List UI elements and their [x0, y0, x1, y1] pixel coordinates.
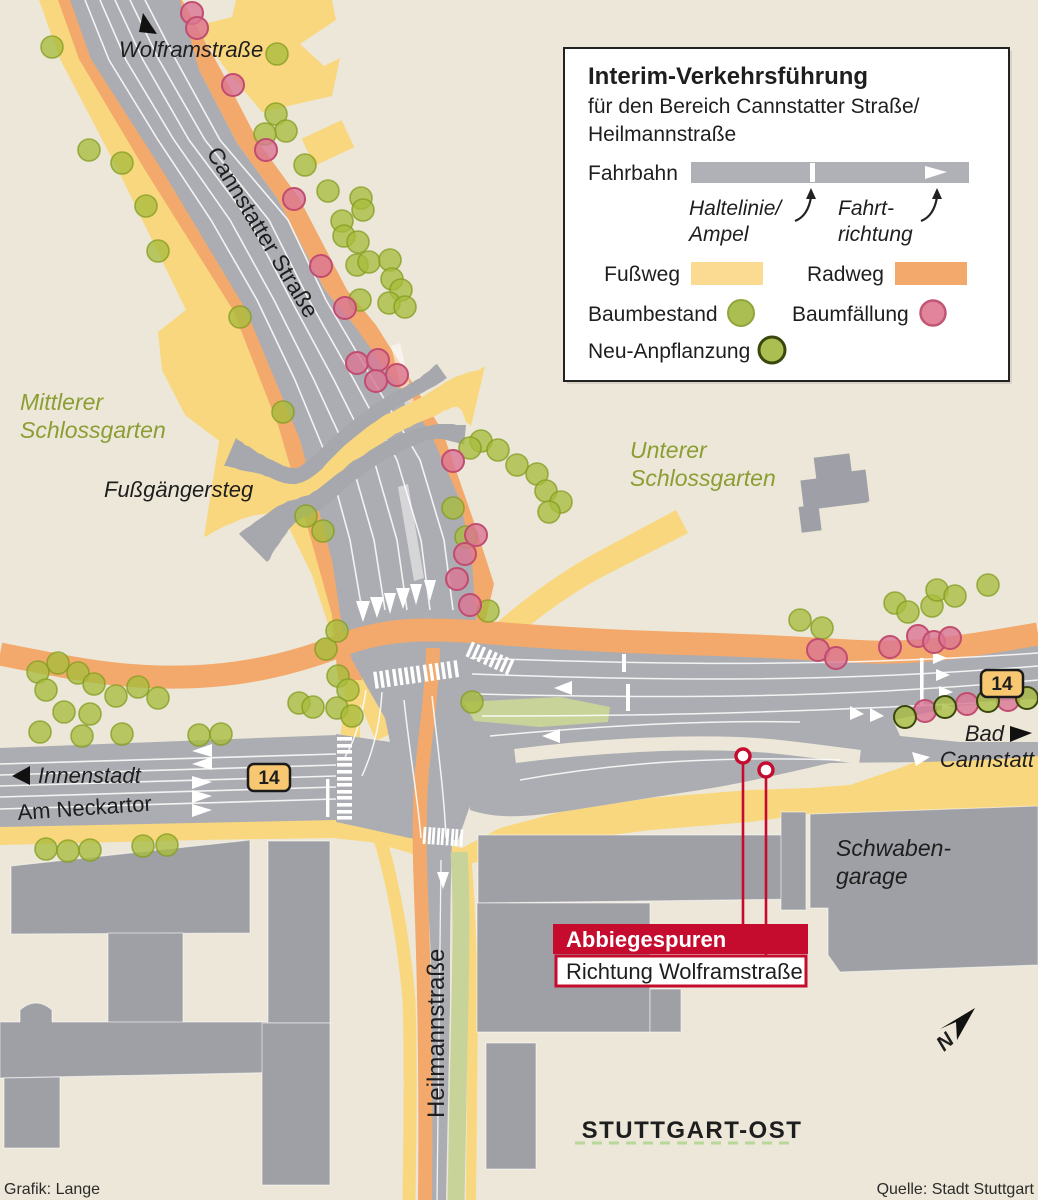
svg-text:Bad: Bad	[965, 721, 1005, 746]
svg-text:Fahrbahn: Fahrbahn	[588, 162, 678, 185]
svg-text:Baumfällung: Baumfällung	[792, 303, 909, 326]
svg-text:Schlossgarten: Schlossgarten	[20, 417, 166, 443]
svg-text:STUTTGART-OST: STUTTGART-OST	[582, 1117, 803, 1144]
svg-text:Baumbestand: Baumbestand	[588, 303, 718, 326]
svg-text:Grafik: Lange: Grafik: Lange	[4, 1181, 100, 1198]
svg-text:Schwaben-: Schwaben-	[836, 835, 951, 861]
svg-text:Haltelinie/: Haltelinie/	[689, 197, 783, 220]
svg-text:Innenstadt: Innenstadt	[38, 763, 142, 788]
svg-text:Unterer: Unterer	[630, 437, 708, 463]
svg-text:Radweg: Radweg	[807, 263, 884, 286]
svg-text:Schlossgarten: Schlossgarten	[630, 465, 776, 491]
svg-text:für den Bereich Cannstatter St: für den Bereich Cannstatter Straße/	[588, 95, 920, 118]
svg-text:14: 14	[258, 768, 280, 789]
svg-text:Neu-Anpflanzung: Neu-Anpflanzung	[588, 340, 750, 363]
svg-text:Abbiegespuren: Abbiegespuren	[566, 927, 726, 952]
svg-text:Quelle: Stadt Stuttgart: Quelle: Stadt Stuttgart	[877, 1181, 1035, 1198]
svg-text:Wolframstraße: Wolframstraße	[119, 37, 263, 62]
svg-text:Heilmannstraße: Heilmannstraße	[423, 949, 450, 1118]
svg-text:Heilmannstraße: Heilmannstraße	[588, 123, 736, 146]
svg-text:garage: garage	[836, 863, 908, 889]
svg-text:richtung: richtung	[838, 223, 913, 246]
svg-text:Cannstatt: Cannstatt	[940, 747, 1035, 772]
svg-text:Fußweg: Fußweg	[604, 263, 680, 286]
svg-text:Ampel: Ampel	[687, 223, 750, 246]
svg-text:Fahrt-: Fahrt-	[838, 197, 894, 220]
svg-text:Interim-Verkehrsführung: Interim-Verkehrsführung	[588, 63, 868, 90]
svg-text:Mittlerer: Mittlerer	[20, 389, 104, 415]
svg-text:Fußgängersteg: Fußgängersteg	[104, 477, 254, 502]
svg-text:14: 14	[991, 674, 1013, 695]
svg-text:Richtung Wolframstraße: Richtung Wolframstraße	[566, 959, 803, 984]
